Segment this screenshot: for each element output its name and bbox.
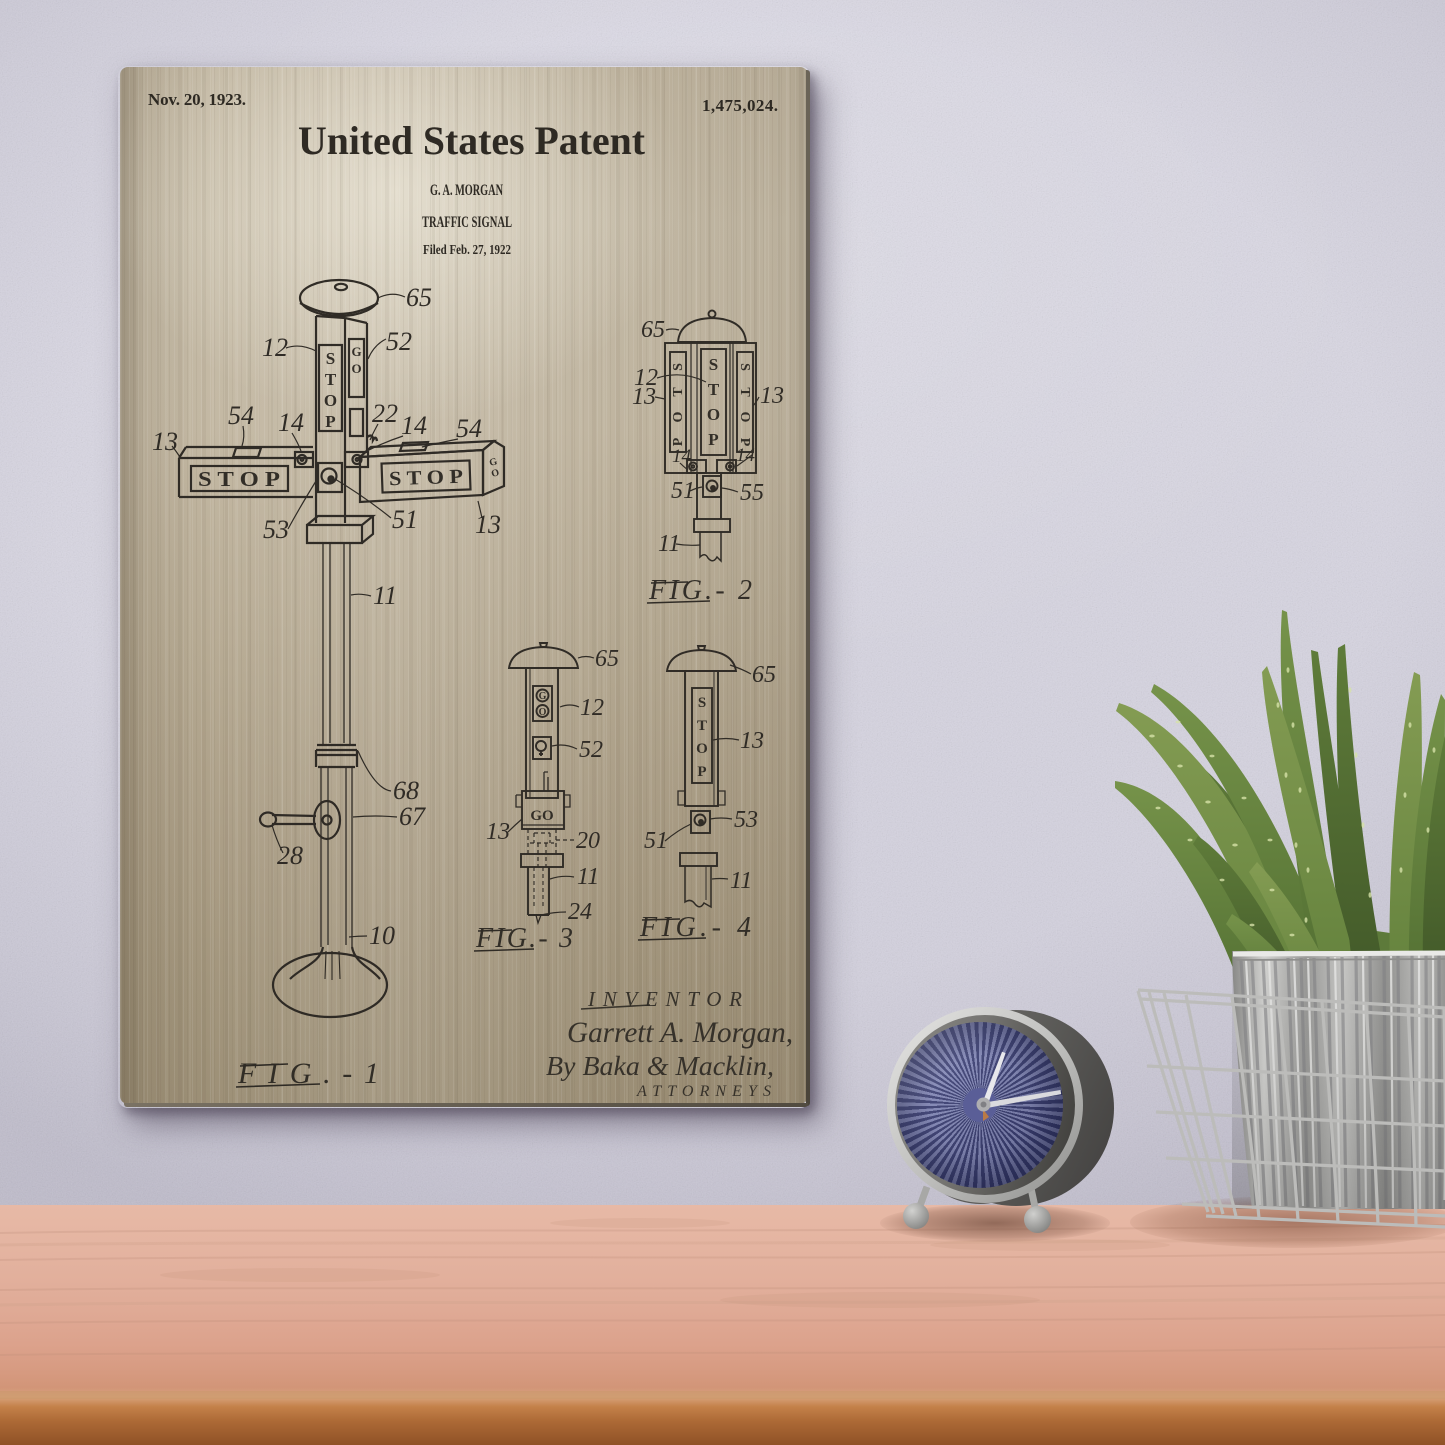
svg-text:T: T	[708, 380, 720, 399]
svg-text:T: T	[671, 387, 686, 397]
svg-text:S: S	[737, 363, 752, 371]
svg-text:65: 65	[595, 646, 619, 672]
svg-text:S: S	[671, 363, 686, 371]
svg-text:P: P	[325, 412, 335, 431]
svg-text:S: S	[326, 349, 335, 368]
svg-text:52: 52	[386, 327, 412, 356]
svg-text:S T O P: S T O P	[389, 466, 464, 491]
svg-text:14: 14	[401, 411, 427, 440]
svg-text:51: 51	[644, 828, 668, 854]
svg-text:55: 55	[740, 480, 764, 506]
svg-text:13: 13	[475, 510, 501, 539]
svg-text:O: O	[696, 741, 708, 757]
svg-text:O: O	[671, 411, 686, 422]
svg-text:P: P	[708, 430, 718, 449]
svg-text:ATTORNEYS: ATTORNEYS	[636, 1083, 775, 1100]
svg-text:65: 65	[406, 283, 432, 312]
svg-text:65: 65	[752, 662, 776, 688]
svg-text:14: 14	[278, 408, 304, 437]
svg-text:G. A. MORGAN: G. A. MORGAN	[430, 182, 503, 199]
svg-text:13: 13	[632, 384, 656, 410]
svg-text:S: S	[698, 695, 706, 711]
svg-text:S: S	[709, 355, 718, 374]
svg-text:GO: GO	[530, 808, 553, 824]
svg-text:O: O	[351, 361, 361, 376]
svg-text:O: O	[324, 391, 337, 410]
svg-text:P: P	[697, 764, 706, 780]
svg-text:1,475,024.: 1,475,024.	[702, 96, 778, 115]
svg-text:54: 54	[228, 401, 254, 430]
svg-text:65: 65	[641, 317, 665, 343]
svg-text:P: P	[671, 437, 686, 446]
svg-text:G: G	[351, 344, 361, 359]
svg-text:O: O	[737, 412, 752, 423]
svg-text:T: T	[737, 387, 752, 397]
svg-text:53: 53	[263, 515, 289, 544]
svg-text:O: O	[539, 707, 547, 718]
svg-text:20: 20	[576, 828, 600, 854]
svg-text:S T O P: S T O P	[198, 467, 280, 491]
svg-text:Filed Feb. 27, 1922: Filed Feb. 27, 1922	[423, 243, 511, 258]
svg-text:O: O	[707, 405, 720, 424]
svg-text:13: 13	[760, 383, 784, 409]
svg-text:10: 10	[369, 921, 395, 950]
svg-text:TRAFFIC SIGNAL: TRAFFIC SIGNAL	[422, 214, 512, 231]
svg-text:By Baka & Macklin,: By Baka & Macklin,	[546, 1051, 774, 1081]
svg-text:51: 51	[671, 478, 695, 504]
svg-text:28: 28	[277, 841, 303, 870]
svg-text:14: 14	[736, 445, 756, 466]
svg-text:11: 11	[373, 581, 397, 610]
svg-text:T: T	[325, 370, 337, 389]
svg-text:Nov. 20, 1923.: Nov. 20, 1923.	[148, 90, 246, 109]
svg-text:O: O	[490, 467, 501, 480]
svg-text:13: 13	[740, 728, 764, 754]
svg-text:14: 14	[672, 446, 692, 467]
svg-text:54: 54	[456, 414, 482, 443]
svg-text:United States Patent: United States Patent	[298, 118, 646, 163]
svg-text:13: 13	[152, 427, 178, 456]
svg-text:24: 24	[568, 899, 592, 925]
svg-text:11: 11	[577, 864, 599, 890]
svg-text:51: 51	[392, 505, 418, 534]
svg-text:11: 11	[730, 868, 752, 894]
svg-text:22: 22	[372, 399, 398, 428]
svg-text:12: 12	[262, 333, 288, 362]
svg-text:52: 52	[579, 737, 603, 763]
svg-text:T: T	[697, 718, 707, 734]
svg-text:Garrett A. Morgan,: Garrett A. Morgan,	[567, 1016, 793, 1049]
svg-text:12: 12	[580, 695, 604, 721]
svg-text:53: 53	[734, 807, 758, 833]
svg-text:67: 67	[399, 802, 426, 831]
svg-text:13: 13	[486, 819, 510, 845]
svg-text:68: 68	[393, 776, 419, 805]
svg-text:G: G	[539, 691, 547, 702]
